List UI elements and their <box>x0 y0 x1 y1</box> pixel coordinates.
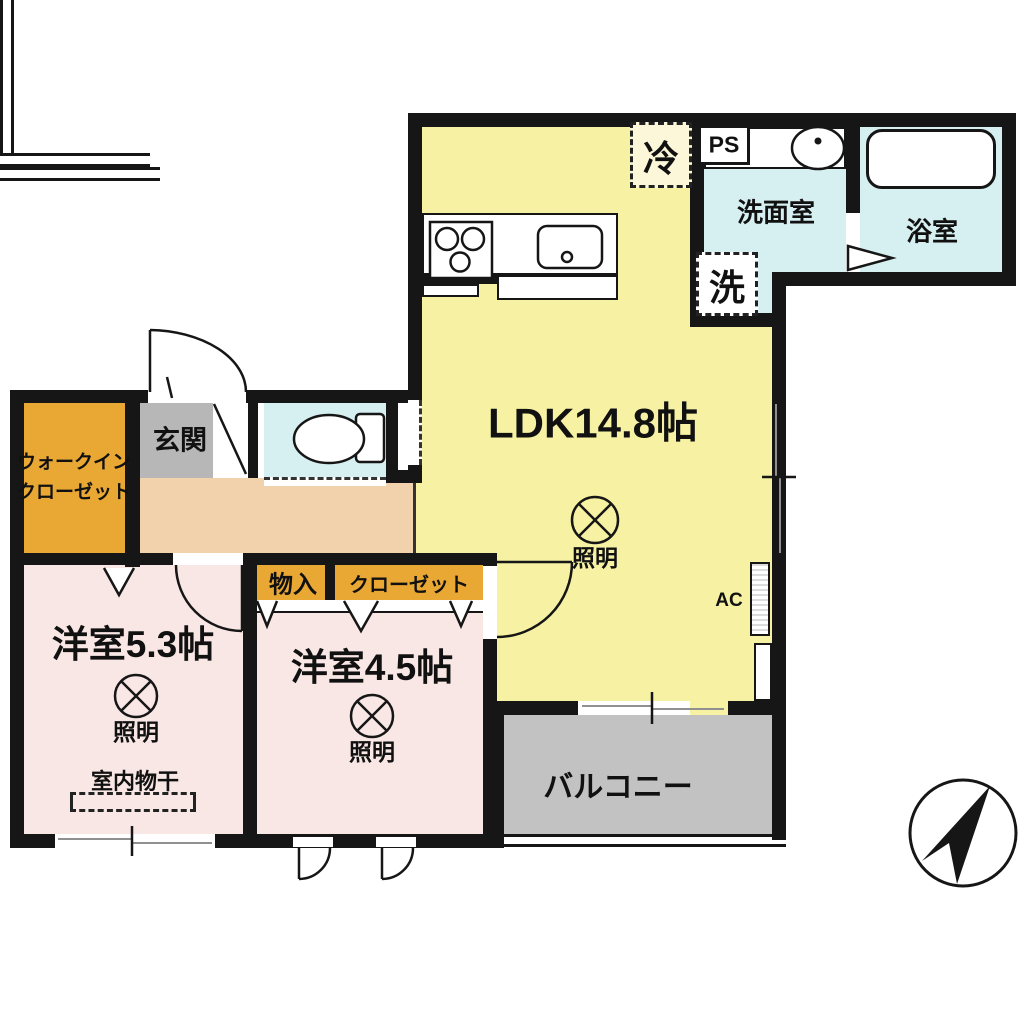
ldk-right-window <box>0 0 14 153</box>
ldk-hall-boundary <box>413 483 416 553</box>
wall <box>1002 113 1016 286</box>
wall <box>772 715 786 840</box>
indoor-drying-label: 室内物干 <box>91 764 179 796</box>
closet-front-strip <box>257 600 483 613</box>
wall <box>483 639 497 848</box>
lighting-label-bedroom53: 照明 <box>113 713 159 747</box>
room-bedroom-45 <box>257 600 483 834</box>
room-hallway <box>138 478 414 553</box>
fridge-label: 冷 <box>643 130 679 182</box>
lighting-label-bedroom45: 照明 <box>349 733 395 767</box>
entrance-label: 玄関 <box>153 419 207 458</box>
wall <box>483 553 497 566</box>
kitchen-counter <box>422 213 618 275</box>
wall <box>246 390 408 403</box>
wall <box>772 272 1016 286</box>
bedroom45-door-gap <box>483 566 497 639</box>
washroom-label: 洗面室 <box>737 193 815 230</box>
toilet-sliding-door <box>264 477 386 486</box>
bath-door-gap <box>846 213 860 272</box>
wall <box>325 565 335 600</box>
wall <box>333 834 376 848</box>
ac-label: AC <box>715 590 742 612</box>
balcony-rail <box>490 834 786 837</box>
wall <box>10 834 55 848</box>
kitchen-lower-counter <box>497 275 618 300</box>
ldk-right-lower-window <box>754 643 772 701</box>
bedroom45-window-1 <box>293 834 333 848</box>
wall <box>10 553 173 565</box>
compass-north-icon <box>910 780 1016 886</box>
room-ldk-mid <box>414 483 690 553</box>
wall <box>772 277 786 715</box>
bathroom-label: 浴室 <box>906 212 958 249</box>
balcony-label: バルコニー <box>543 762 692 806</box>
washer-label: 洗 <box>709 259 745 311</box>
wall <box>846 113 860 213</box>
wall <box>215 834 293 848</box>
floor-plan: LDK14.8帖 照明 洋室5.3帖 照明 室内物干 洋室4.5帖 照明 バルコ… <box>0 0 1024 1024</box>
bedroom45-window-2 <box>376 834 416 848</box>
ac-unit <box>750 562 770 636</box>
wall <box>10 390 139 403</box>
walk-in-closet-label: ウォークイン クローゼット <box>17 448 131 508</box>
wall <box>416 834 497 848</box>
entrance-inner-door <box>214 404 246 474</box>
bedroom53-window <box>0 167 160 181</box>
ldk-label: LDK14.8帖 <box>488 390 698 451</box>
bedroom45-label: 洋室4.5帖 <box>291 637 453 691</box>
wall <box>243 553 257 848</box>
ps-label: PS <box>709 132 740 159</box>
wall <box>248 403 258 478</box>
closet-label: クローゼット <box>349 569 469 598</box>
walk-in-closet-line1: ウォークイン <box>17 448 131 478</box>
lighting-label-ldk: 照明 <box>572 539 618 573</box>
wall <box>728 701 786 715</box>
room-ldk-south <box>497 553 690 701</box>
wall <box>408 113 422 400</box>
balcony-rail <box>490 844 786 847</box>
bathtub-icon <box>866 129 996 189</box>
casement-window-arcs <box>299 848 413 879</box>
wall <box>386 390 398 480</box>
walk-in-closet-line2: クローゼット <box>17 478 131 508</box>
room-toilet <box>264 403 386 477</box>
ldk-sliding-door <box>408 400 422 465</box>
balcony-sliding-window <box>0 153 150 167</box>
bedroom53-label: 洋室5.3帖 <box>52 614 214 668</box>
wall <box>243 553 497 565</box>
storage-label: 物入 <box>269 565 317 600</box>
bedroom53-door-gap <box>173 553 243 565</box>
kitchen-side-counter <box>422 284 479 297</box>
entrance-door-arc <box>150 330 246 398</box>
